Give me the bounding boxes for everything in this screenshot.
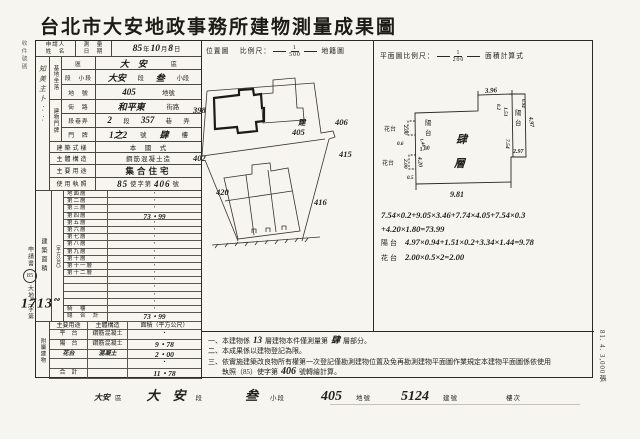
- attached-cell: [88, 369, 128, 378]
- floor-label: 總 合 計: [64, 313, 108, 320]
- dim-094: 0.94: [520, 99, 525, 108]
- survey-date-value: 85年 10月 8日: [112, 41, 201, 56]
- floor-row: 第三層・: [64, 205, 201, 212]
- attached-cell: 合 計: [50, 369, 88, 378]
- usage-row: 主要用途 集合住宅: [50, 165, 201, 178]
- dim-151: 1.51: [502, 107, 508, 117]
- balcony-label-2: 台: [515, 118, 522, 127]
- floor-value: ・: [108, 277, 201, 283]
- floor-row: 第十一層・: [64, 263, 201, 270]
- floor-rows: 地面層・第二層・第三層・第四層73・99第五層・第六層・第七層・第八層・第九層・…: [64, 191, 201, 321]
- floor-row: 第十層・: [64, 256, 201, 263]
- floor-row: 第四層73・99: [64, 213, 201, 220]
- floor-row: ・: [64, 284, 201, 291]
- floor-plan-drawing: 3.96 1.51 0.2 陽 台 4.97 0.94 7.54 2.97 肆 …: [378, 87, 568, 227]
- footer-parcel-line: 大安 區 大 安 段 叁 小段 405 地號 5124 建號 樓次: [60, 385, 605, 405]
- floor-label: 地面層: [64, 191, 108, 197]
- floor-value: 73・99: [108, 213, 201, 219]
- floor-value: ・: [108, 234, 201, 240]
- address-group: 建物門牌 街 路 和平東街路 段巷弄 2段 357巷: [50, 99, 201, 141]
- floor-plan-header: 平面圖比例尺：1200 面積計算式: [380, 50, 524, 63]
- section-row: 段 小段 大安段 叁小段: [62, 70, 201, 85]
- attached-cell: ・: [128, 359, 201, 368]
- plate-group-label: 建物門牌: [50, 100, 62, 141]
- floor-value: ・: [108, 220, 201, 226]
- scan-artifact-line: [330, 404, 580, 405]
- attached-cell: ・: [128, 330, 201, 339]
- floor-value: ・: [108, 256, 201, 262]
- license-row: 使用執照 85 使字第 406 號: [50, 178, 201, 190]
- area-calculations: 7.54×0.2+9.05×3.46+7.74×4.05+7.54×0.3 +4…: [381, 209, 593, 265]
- style-row: 建築式樣 本 國 式: [50, 141, 201, 153]
- floor-label: 第五層: [64, 220, 108, 226]
- formula-balcony: 陽台4.97×0.94+1.51×0.2+3.34×1.44=9.78: [381, 236, 593, 251]
- parcel-402: 402: [192, 153, 207, 163]
- balcony-label-1: 陽: [515, 108, 522, 117]
- room-label-1: 肆: [456, 133, 469, 146]
- floor-row: ・: [64, 277, 201, 284]
- lane-row: 段巷弄 2段 357巷 弄: [62, 114, 201, 128]
- floor-area-section: 建築面積 （平方公尺） 地面層・第二層・第三層・第四層73・99第五層・第六層・…: [36, 191, 201, 322]
- location-map-drawing: 398 402 406 415 416 420 建 405: [192, 63, 371, 313]
- note-2: 二、本成果係以建物登記為限。: [208, 346, 588, 356]
- inner-balcony-label-2: 台: [425, 128, 432, 137]
- dim-top: 3.96: [484, 87, 498, 95]
- attached-structures-section: 附屬建物 主要用途 主體構造 面積（平方公尺） 平 台鋼筋混凝土・陽 台鋼筋混凝…: [36, 322, 201, 379]
- dim-297: 2.97: [512, 149, 525, 155]
- note-1: 一、本建物係13層建物本件僅測量第肆層部分。: [208, 335, 588, 346]
- attached-cell: 花台: [50, 350, 88, 359]
- attached-row: 平 台鋼筋混凝土・: [50, 330, 201, 340]
- dim-06: 0.6: [397, 141, 404, 147]
- stamp-year-circle: 85: [23, 269, 37, 283]
- floor-label: [64, 299, 108, 305]
- floor-label: 第九層: [64, 249, 108, 255]
- site-group-label: 基地坐落: [50, 57, 62, 99]
- floor-row: 第十二層・: [64, 270, 201, 277]
- dim-420: 4.20: [416, 156, 423, 168]
- location-map-area: 位置圖 比例尺：1500 地籍圖 398 402: [202, 41, 373, 331]
- identity-section: 知美主卜︰︰ 基地坐落 區 大 安區 段 小段: [36, 57, 201, 191]
- floor-label: 第二層: [64, 198, 108, 204]
- dim-497: 4.97: [527, 115, 535, 128]
- formula-flowerbox: 花台2.00×0.5×2=2.00: [381, 251, 593, 266]
- floor-row: 第五層・: [64, 220, 201, 227]
- floor-row: 總 合 計73・99: [64, 313, 201, 321]
- floor-label: 第八層: [64, 241, 108, 247]
- floor-value: ・: [108, 249, 201, 255]
- floor-row: ・: [64, 299, 201, 306]
- inner-balcony-label-1: 陽: [425, 118, 432, 127]
- floor-value: ・: [108, 227, 201, 233]
- form-frame: 申請人 姓 名 測 量 日 期 85年 10月 8日 知美主卜︰︰: [35, 40, 593, 378]
- print-run-info: 81. 4. 3,000張: [596, 330, 606, 382]
- dim-bottom: 9.81: [450, 190, 464, 199]
- floor-row: ・: [64, 292, 201, 299]
- dim-200b: 2.00: [402, 158, 408, 169]
- floor-label: 第四層: [64, 213, 108, 219]
- attached-group-label: 附屬建物: [36, 322, 50, 379]
- attached-cell: 混凝土: [88, 350, 128, 359]
- floor-label: [64, 292, 108, 298]
- floor-label: 第七層: [64, 234, 108, 240]
- floor-label: 第三層: [64, 205, 108, 211]
- subject-building-outline: [214, 89, 264, 133]
- location-map-header: 位置圖 比例尺：1500 地籍圖: [206, 45, 345, 58]
- floor-value: 73・99: [108, 313, 201, 320]
- flower-box-label-lower: 花台: [382, 159, 394, 167]
- attached-row: 陽 台鋼筋混凝土9・78: [50, 340, 201, 350]
- district-row: 區 大 安區: [62, 57, 201, 70]
- floor-value: ・: [108, 191, 201, 197]
- dim-754: 7.54: [504, 139, 510, 149]
- subject-parcel-prefix: 建: [297, 118, 307, 127]
- notes-block: 一、本建物係13層建物本件僅測量第肆層部分。 二、本成果係以建物登記為限。 三、…: [202, 331, 594, 379]
- attached-cell: 2・00: [128, 350, 201, 359]
- floor-value: ・: [108, 284, 201, 290]
- door-number-row: 門 牌 1之2號 肆樓: [62, 128, 201, 141]
- scale-rule: [273, 51, 286, 52]
- receipt-number-label: 收件號碼: [19, 40, 28, 71]
- floor-value: ・: [108, 198, 201, 204]
- floor-label: 第十層: [64, 256, 108, 262]
- floor-value: ・: [108, 241, 201, 247]
- note-4: 執照（85）使字第406號轉繪計算。: [208, 367, 588, 377]
- floor-label: [64, 284, 108, 290]
- attached-cell: 鋼筋混凝土: [88, 330, 128, 339]
- floor-value: ・: [108, 263, 201, 269]
- floor-value: ・: [108, 270, 201, 276]
- attached-row: ・: [50, 359, 201, 369]
- dim-05: 0.5: [407, 175, 414, 181]
- left-form-table: 申請人 姓 名 測 量 日 期 85年 10月 8日 知美主卜︰︰: [36, 41, 202, 379]
- structure-row: 主體構造 鋼筋混凝土造: [50, 153, 201, 165]
- header-row: 申請人 姓 名 測 量 日 期 85年 10月 8日: [36, 41, 201, 57]
- floor-value: ・: [108, 299, 201, 305]
- street-row: 街 路 和平東街路: [62, 100, 201, 114]
- survey-date-label: 測 量 日 期: [76, 41, 112, 56]
- attached-rows: 平 台鋼筋混凝土・陽 台鋼筋混凝土9・78花台混凝土2・00・合 計11・78: [50, 330, 201, 379]
- parcel-row: 地 號 405地號: [62, 85, 201, 99]
- subject-parcel-number: 405: [291, 127, 306, 137]
- attached-cell: 平 台: [50, 330, 88, 339]
- attached-cell: 11・78: [128, 369, 201, 378]
- dim-200a: 2.00: [402, 124, 408, 135]
- dim-02: 0.2: [495, 104, 500, 111]
- attached-row: 合 計11・78: [50, 369, 201, 379]
- floor-label: 第十二層: [64, 270, 108, 276]
- flower-box-label-upper: 花台: [384, 125, 396, 133]
- formula-line-1: 7.54×0.2+9.05×3.46+7.74×4.05+7.54×0.3: [381, 209, 593, 223]
- floor-row: 第九層・: [64, 249, 201, 256]
- attached-cell: 陽 台: [50, 340, 88, 349]
- parcel-398: 398: [192, 105, 207, 115]
- site-location-group: 基地坐落 區 大 安區 段 小段 大安段 叁小段: [50, 57, 201, 99]
- parcel-420: 420: [215, 187, 230, 197]
- attached-cell: [50, 359, 88, 368]
- parcel-416: 416: [313, 197, 328, 207]
- applicant-handwriting: 知美主卜︰︰: [36, 57, 50, 190]
- applicant-label: 申請人 姓 名: [36, 41, 76, 56]
- room-label-2: 層: [453, 158, 467, 170]
- attached-header-row: 主要用途 主體構造 面積（平方公尺）: [50, 322, 201, 330]
- floor-value: ・: [108, 292, 201, 298]
- note-3: 三、依實施建築改良物所有權第一次登記僅勘測建物位置及免再勘測建物平面圖作業規定本…: [208, 357, 588, 367]
- floor-label: 騎 樓: [64, 306, 108, 312]
- parcel-406: 406: [334, 117, 349, 127]
- floor-row: 第八層・: [64, 241, 201, 248]
- attached-row: 花台混凝土2・00: [50, 350, 201, 360]
- floor-value: ・: [108, 205, 201, 211]
- scanned-survey-document: 台北市大安地政事務所建物測量成果圖 收件號碼 申請人 姓 名 測 量 日 期 8…: [0, 0, 640, 439]
- floor-label: 第六層: [64, 227, 108, 233]
- attached-cell: 鋼筋混凝土: [88, 340, 128, 349]
- attached-cell: [88, 359, 128, 368]
- document-title: 台北市大安地政事務所建物測量成果圖: [40, 12, 397, 39]
- floor-plan-area: 平面圖比例尺：1200 面積計算式 3.96 1.51 0.2 陽 台 4.97…: [373, 41, 594, 331]
- floor-label: 第十一層: [64, 263, 108, 269]
- parcel-415: 415: [338, 149, 353, 159]
- attached-cell: 9・78: [128, 340, 201, 349]
- application-number: 1713∾: [21, 295, 61, 313]
- dim-180: 1.80: [419, 145, 430, 153]
- floor-label: [64, 277, 108, 283]
- formula-line-2: +4.20×1.80=73.99: [381, 223, 593, 237]
